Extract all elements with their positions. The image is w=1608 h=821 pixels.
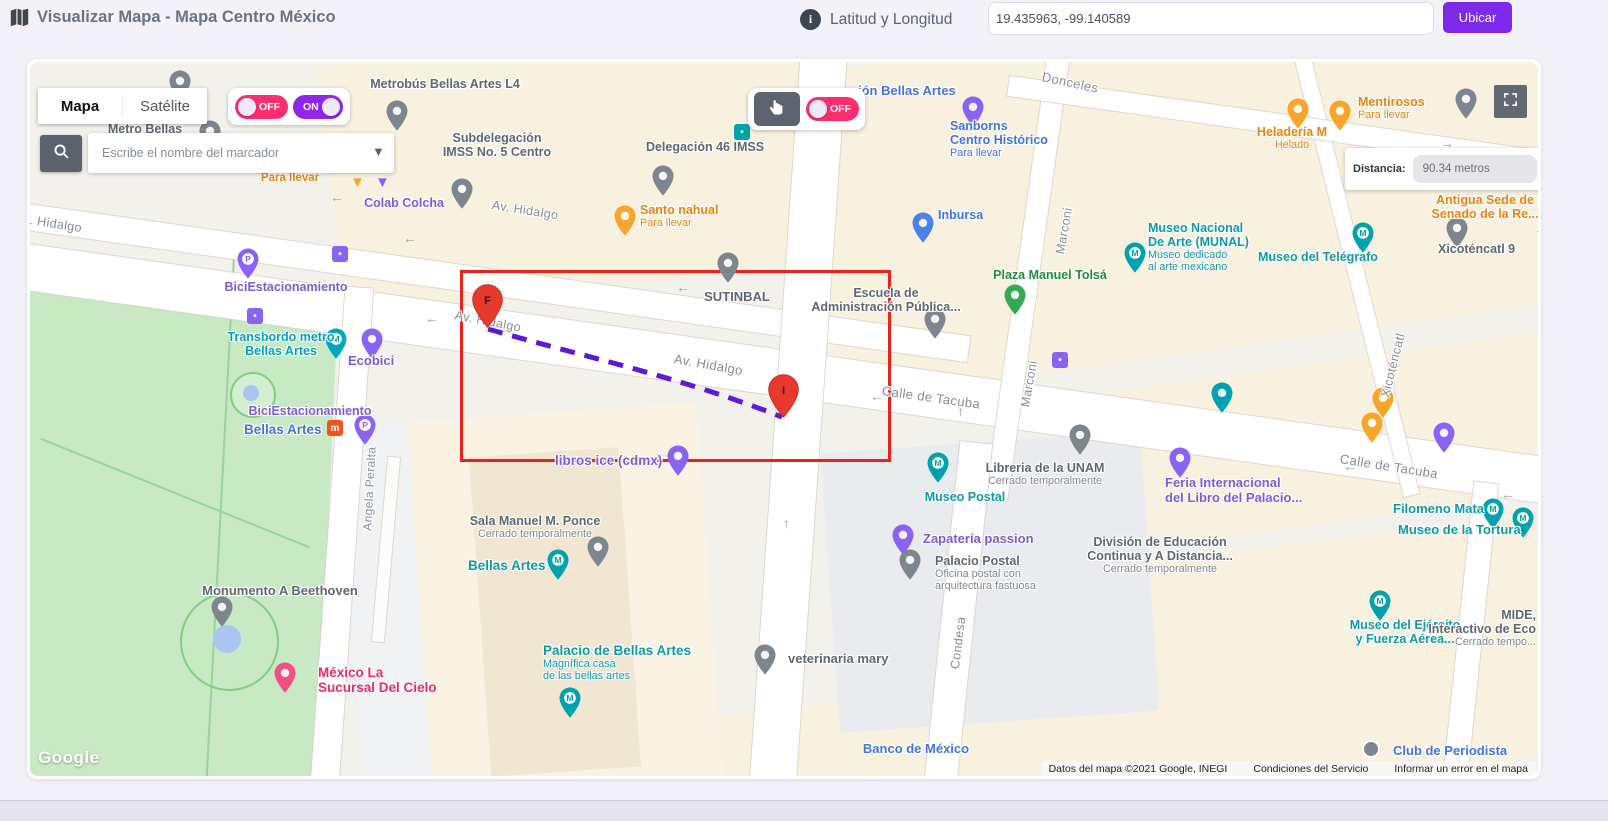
map-label: Heladería MHelado	[1257, 125, 1327, 151]
map-label: México LaSucursal Del Cielo	[318, 665, 437, 696]
map-label: Antigua Sede deSenado de la Re...	[1432, 193, 1538, 221]
app: Visualizar Mapa - Mapa Centro México i L…	[0, 0, 1608, 821]
map-pin	[1361, 412, 1383, 443]
svg-text:M: M	[554, 555, 561, 565]
header: Visualizar Mapa - Mapa Centro México i L…	[0, 0, 1608, 44]
map-pin: M	[559, 687, 581, 718]
drag-control: OFF	[748, 88, 865, 130]
tab-mapa[interactable]: Mapa	[38, 88, 122, 124]
map-logo-icon	[10, 8, 29, 27]
map-pin: ▼	[375, 174, 390, 191]
map-label: Bellas Artes	[244, 422, 322, 437]
palacio-building	[469, 447, 641, 776]
map-pin: M	[1124, 242, 1146, 273]
map-label: Xicoténcatl 9	[1438, 242, 1515, 256]
map-type-control: Mapa Satélite	[38, 88, 207, 124]
road-arrow-icon: ↑	[783, 515, 790, 531]
map-label: Transbordo metroBellas Artes	[228, 330, 335, 358]
map-pin	[1004, 284, 1026, 315]
map-canvas[interactable]: F I Mapa Satélite OFF ON	[30, 62, 1538, 776]
svg-text:M: M	[1489, 504, 1496, 514]
map-label: Plaza Manuel Tolsá	[993, 268, 1107, 282]
fountain-pond	[213, 625, 241, 653]
map-pin: M	[1352, 222, 1374, 253]
map-pin: P	[354, 414, 376, 445]
map-label: Libreria de la UNAMCerrado temporalmente	[986, 461, 1105, 487]
chevron-down-icon[interactable]: ▼	[372, 144, 385, 159]
svg-text:M: M	[1131, 248, 1138, 258]
map-label: ión Bellas Artes	[858, 84, 956, 99]
map-label: Sala Manuel M. PonceCerrado temporalment…	[470, 514, 601, 540]
map-label: Museo de la Tortura	[1398, 523, 1521, 538]
layer-toggles: OFF ON	[228, 88, 350, 125]
map-pin	[912, 212, 934, 243]
drag-toggle-off[interactable]: OFF	[806, 97, 859, 121]
map-pin	[1362, 740, 1380, 758]
svg-text:M: M	[566, 693, 573, 703]
report-error-link[interactable]: Informar un error en el mapa	[1394, 763, 1528, 775]
map-label: MentirososPara llevar	[1358, 95, 1425, 121]
distance-value: 90.34 metros	[1413, 155, 1537, 183]
map-pin	[274, 662, 296, 693]
coords-label: Latitud y Longitud	[830, 11, 952, 29]
map-label: MIDE,Interactivo de EcoCerrado tempo...	[1428, 608, 1536, 648]
marker-search-input[interactable]	[88, 133, 394, 173]
hand-icon	[767, 97, 787, 122]
toggle-knob	[809, 100, 827, 118]
map-pin: m	[327, 420, 343, 436]
map-label: Inbursa	[938, 208, 983, 222]
map-label: Museo del Telégrafo	[1258, 250, 1378, 264]
footer-strip	[0, 800, 1608, 821]
toggle-knob	[322, 98, 340, 116]
map-pin: •	[1052, 352, 1068, 368]
distance-label: Distancia:	[1353, 163, 1406, 175]
map-pin	[1329, 100, 1351, 131]
road-arrow-icon: ←	[676, 279, 690, 295]
end-marker[interactable]: I	[768, 374, 799, 418]
map-pin	[1455, 88, 1477, 119]
search-icon	[53, 143, 70, 165]
map-pin	[587, 536, 609, 567]
svg-text:P: P	[245, 254, 251, 264]
hand-tool-button[interactable]	[754, 92, 800, 126]
map-pin	[754, 644, 776, 675]
map-pin: •	[734, 124, 750, 140]
map-label: Feria Internacionaldel Libro del Palacio…	[1165, 476, 1302, 505]
map-label: Palacio de Bellas ArtesMagnífica casade …	[543, 643, 691, 683]
map-label: Museo NacionalDe Arte (MUNAL)Museo dedic…	[1148, 221, 1249, 274]
start-marker[interactable]: F	[472, 284, 503, 328]
locate-button[interactable]: Ubicar	[1443, 2, 1512, 33]
terms-link[interactable]: Condiciones del Servicio	[1253, 763, 1368, 775]
map-label: Colab Colcha	[364, 196, 444, 210]
map-pin	[1211, 382, 1233, 413]
map-label: SanbornsCentro HistóricoPara llevar	[950, 119, 1048, 159]
map-label: Zapatería passion	[923, 532, 1034, 547]
map-pin	[1069, 424, 1091, 455]
toggle-off[interactable]: OFF	[235, 95, 288, 119]
map-pin	[667, 445, 689, 476]
map-label: veterinaria mary	[788, 652, 888, 667]
svg-text:M: M	[934, 458, 941, 468]
map-pin: ▼	[350, 174, 365, 191]
distance-panel: Distancia: 90.34 metros	[1345, 148, 1538, 190]
map-label: Palacio PostalOficina postal conarquitec…	[935, 554, 1036, 593]
coords-input[interactable]	[988, 2, 1434, 35]
tab-satelite[interactable]: Satélite	[123, 88, 207, 124]
road-arrow-icon: ←	[330, 189, 344, 205]
map-label: Monumento A Beethoven	[202, 584, 358, 599]
map-pin	[211, 596, 233, 627]
map-label: Filomeno Mata	[1393, 502, 1484, 517]
map-pin	[1169, 447, 1191, 478]
map-label: Escuela deAdministración Pública...	[811, 286, 960, 314]
google-logo[interactable]: Google	[38, 748, 100, 768]
map-label: División de EducaciónContinua y A Distan…	[1087, 535, 1233, 575]
map-pin	[652, 165, 674, 196]
map-label: Club de Periodista	[1393, 744, 1507, 759]
map-pin	[614, 205, 636, 236]
page-title: Visualizar Mapa - Mapa Centro México	[10, 8, 336, 27]
map-pin: P	[237, 248, 259, 279]
attribution-bar: Datos del mapa ©2021 Google, INEGI Condi…	[1041, 761, 1536, 776]
search-button[interactable]	[40, 135, 82, 172]
svg-text:F: F	[484, 295, 491, 307]
map-pin	[386, 100, 408, 131]
map-label: SUTINBAL	[704, 290, 770, 305]
map-label: Metrobús Bellas Artes L4	[370, 77, 520, 91]
map-data-text: Datos del mapa ©2021 Google, INEGI	[1049, 763, 1228, 775]
svg-text:I: I	[782, 385, 785, 397]
toggle-knob	[238, 98, 256, 116]
map-label: Museo Postal	[925, 490, 1006, 504]
map-pin: •	[247, 308, 263, 324]
map-pin: M	[1369, 590, 1391, 621]
map-pin	[899, 549, 921, 580]
road-arrow-icon: ←	[403, 230, 417, 246]
map-pin: •	[332, 246, 348, 262]
svg-text:P: P	[362, 420, 368, 430]
svg-text:M: M	[1376, 596, 1383, 606]
map-label: Santo nahualPara llevar	[640, 203, 718, 229]
svg-text:M: M	[1359, 228, 1366, 238]
map-pin	[1433, 422, 1455, 453]
map-pin	[451, 178, 473, 209]
map-label: Delegación 46 IMSS	[646, 140, 764, 154]
map-label: SubdelegaciónIMSS No. 5 Centro	[443, 131, 551, 159]
park-pond	[243, 385, 259, 401]
info-icon: i	[800, 9, 821, 30]
map-label: libros ice (cdmx)	[555, 453, 662, 468]
map-label: Ecobici	[348, 354, 394, 369]
map-pin: M	[927, 452, 949, 483]
map-pin	[717, 252, 739, 283]
map-label: Bellas Artes	[468, 558, 546, 573]
fullscreen-icon	[1503, 92, 1518, 112]
map-label: BiciEstacionamiento	[225, 280, 348, 294]
map-card: F I Mapa Satélite OFF ON	[27, 59, 1541, 779]
road-arrow-icon: ←	[425, 310, 439, 326]
map-label: Para llevar	[261, 172, 319, 185]
fullscreen-button[interactable]	[1494, 85, 1527, 118]
toggle-on[interactable]: ON	[293, 95, 343, 119]
map-pin: M	[547, 549, 569, 580]
map-label: BiciEstacionamiento	[249, 404, 372, 418]
map-label: Banco de México	[863, 742, 969, 757]
